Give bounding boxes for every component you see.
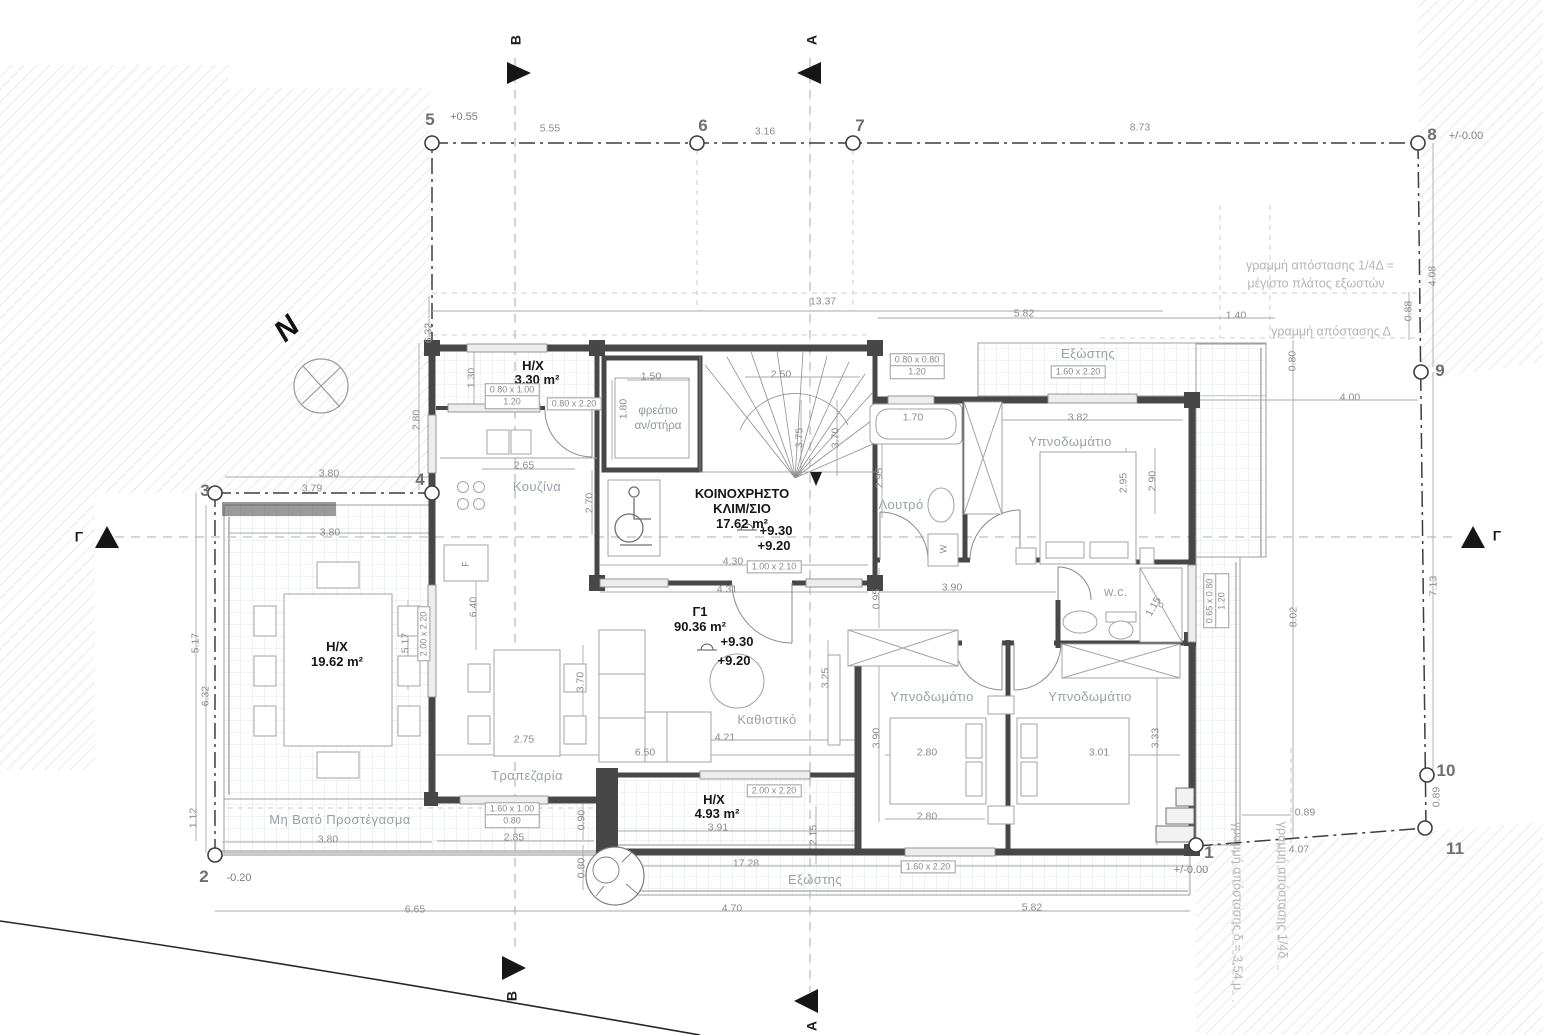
dimension-label: 0.80: [1287, 351, 1298, 371]
level-label: +0.55: [450, 112, 478, 124]
dimension-label: 3.01: [1089, 747, 1109, 758]
grid-point-6: 6: [698, 117, 707, 135]
dimension-label: 1.12: [188, 808, 199, 828]
dimension-label: 13.37: [810, 296, 836, 307]
opening-size-box: 0.80 x 2.20: [547, 397, 602, 410]
level-label: +9.30: [721, 635, 754, 649]
room-label-bedroom-2: Υπνοδωμάτιο: [890, 690, 973, 704]
dimension-label: 3.70: [575, 672, 586, 692]
dimension-label: 3.90: [942, 582, 962, 593]
grid-point-7: 7: [855, 117, 864, 135]
level-label: +/-0.00: [1449, 131, 1484, 143]
dimension-label: 7.13: [1428, 576, 1439, 596]
dimension-label: 0.90: [576, 810, 587, 830]
level-label: -0.20: [226, 873, 251, 885]
dimension-label: 0.89: [1431, 787, 1442, 807]
dimension-label: 3.16: [755, 126, 775, 137]
area-label-common-stair: ΚΛΙΜ/ΣΙΟ: [713, 502, 771, 516]
grid-point-9: 9: [1435, 362, 1444, 380]
opening-size-box: 1.00 x 2.10: [747, 560, 802, 573]
dimension-label: 4.31: [717, 584, 737, 595]
dimension-label: 2.80: [917, 811, 937, 822]
room-label-elevator-shaft: αν/στήρα: [635, 420, 682, 432]
dimension-label: 2.70: [584, 493, 595, 513]
area-label-common-stair: ΚΟΙΝΟΧΡΗΣΤΟ: [695, 487, 789, 501]
opening-size: 1.00 x 2.10: [748, 561, 801, 572]
fridge-label: F: [461, 561, 470, 567]
area-label: 19.62 m²: [311, 655, 363, 669]
dimension-label: 4.07: [1289, 844, 1309, 855]
dimension-label: 1.80: [618, 399, 629, 419]
opening-sill-height: 1.20: [891, 366, 944, 378]
opening-size: 0.80 x 0.80: [891, 354, 944, 365]
area-label: H/X: [522, 359, 544, 373]
dimension-label: 5.82: [1022, 902, 1042, 913]
dimension-label: 8.02: [1288, 607, 1299, 627]
opening-size-box: 2.00 x 2.20: [747, 784, 802, 797]
opening-size: 1.60 x 2.20: [902, 861, 955, 872]
dimension-label: 3.80: [320, 527, 340, 538]
dimension-label: 2.65: [514, 460, 534, 471]
grid-point-4: 4: [415, 471, 424, 489]
dimension-label: 4.08: [1427, 266, 1438, 286]
dimension-label: 0.80: [576, 858, 587, 878]
dimension-label: 3.80: [318, 834, 338, 845]
dimension-label: 2.95: [874, 468, 885, 488]
dimension-label: 2.80: [917, 747, 937, 758]
dimension-label: 8.73: [1130, 122, 1150, 133]
room-label-bedroom-3: Υπνοδωμάτιο: [1048, 690, 1131, 704]
room-label-kitchen: Κουζίνα: [513, 480, 561, 494]
floor-plan-canvas: 5678910111234+0.55+/-0.00-0.20+/-0.005.5…: [0, 0, 1543, 1035]
dimension-label: 6.32: [423, 323, 434, 343]
opening-size-box: 1.60 x 2.20: [901, 860, 956, 873]
setback-note: γραμμή απόστασης δ = 3,54 μ: [1230, 822, 1243, 990]
room-label-bedroom-1: Υπνοδωμάτιο: [1028, 435, 1111, 449]
wheelchair-icon: [608, 480, 660, 556]
opening-size: 2.00 x 2.20: [418, 608, 429, 661]
dimension-label: 4.21: [715, 732, 735, 743]
section-marker-b-bottom: B: [505, 991, 520, 1001]
dimension-label: 1.70: [903, 412, 923, 423]
room-label-canopy: Μη Βατό Προστέγασμα: [269, 813, 410, 827]
level-label: +9.20: [758, 539, 791, 553]
dimension-label: 4.00: [1340, 392, 1360, 403]
dimension-label: 3.33: [1150, 728, 1161, 748]
opening-size: 2.00 x 2.20: [748, 785, 801, 796]
dimension-label: 3.80: [319, 468, 339, 479]
dimension-label: 0.95: [871, 589, 882, 609]
opening-size-box: 0.65 x 0.801.20: [1203, 574, 1229, 629]
road-line: [0, 921, 700, 1035]
setback-note: μέγιστο πλάτος εξωστών: [1247, 277, 1384, 290]
setback-note: γραμμή απόστασης Δ: [1271, 325, 1391, 338]
section-marker-g-left: Γ: [75, 530, 83, 545]
dimension-label: 2.80: [411, 410, 422, 430]
opening-size-box: 2.00 x 2.20: [417, 607, 430, 662]
room-label-bathroom: Λουτρό: [878, 498, 923, 512]
dimension-label: 3.70: [830, 428, 841, 448]
setback-note: γραμμή απόστασης 1/4Δ =: [1246, 259, 1394, 272]
dimension-label: 3.91: [708, 822, 728, 833]
opening-size: 0.80 x 1.00: [486, 384, 539, 395]
section-marker-b-top: B: [509, 35, 524, 45]
dimension-label: 17.28: [733, 858, 759, 869]
room-label-balcony-top: Εξώστης: [1061, 347, 1115, 361]
opening-sill-height: 1.20: [486, 396, 539, 408]
dimension-label: 2.95: [1118, 473, 1129, 493]
dimension-label: 1.30: [466, 368, 477, 388]
dimension-label: 6.50: [635, 747, 655, 758]
level-label: +9.30: [760, 524, 793, 538]
area-label: H/X: [703, 793, 725, 807]
grid-point-11: 11: [1446, 840, 1464, 858]
opening-size-box: 1.60 x 1.000.80: [485, 802, 540, 828]
room-label-balcony-bottom: Εξώστης: [788, 873, 842, 887]
section-marker-g-right: Γ: [1493, 529, 1501, 544]
opening-size: 0.65 x 0.80: [1204, 575, 1215, 628]
dimension-label: 3.79: [302, 483, 322, 494]
washer-label: W: [939, 545, 948, 554]
opening-size-box: 0.80 x 1.001.20: [485, 383, 540, 409]
dimension-label: 3.82: [1068, 412, 1088, 423]
area-label: H/X: [326, 640, 348, 654]
section-marker-a-top: A: [805, 35, 820, 45]
dimension-label: 4.30: [723, 556, 743, 567]
dimension-label: 3.75: [794, 428, 805, 448]
dimension-label: 2.15: [808, 825, 819, 845]
room-label-dining: Τραπεζαρία: [491, 769, 563, 783]
tree-icon: [586, 847, 644, 905]
opening-size: 1.60 x 1.00: [486, 803, 539, 814]
area-label: 4.93 m²: [695, 807, 740, 821]
level-label: +9.20: [718, 654, 751, 668]
dimension-label: 0.89: [1295, 807, 1315, 818]
dimension-label: 3.25: [820, 668, 831, 688]
dimension-label: 5.17: [190, 633, 201, 653]
dimension-label: 6.65: [405, 904, 425, 915]
dimension-label: 1.40: [1226, 310, 1246, 321]
dimension-label: 2.90: [1147, 471, 1158, 491]
opening-sill-height: 1.20: [1216, 575, 1228, 628]
opening-sill-height: 0.80: [486, 815, 539, 827]
dimension-label: 2.50: [771, 369, 791, 380]
area-label-apartment: 90.36 m²: [674, 620, 726, 634]
opening-size: 0.80 x 2.20: [548, 398, 601, 409]
opening-size: 1.60 x 2.20: [1052, 366, 1105, 377]
room-label-elevator-shaft: φρεάτιο: [638, 405, 677, 417]
opening-size-box: 0.80 x 0.801.20: [890, 353, 945, 379]
dimension-label: 5.82: [1014, 308, 1034, 319]
dimension-label: 6.40: [468, 597, 479, 617]
dimension-label: 3.90: [871, 728, 882, 748]
grid-point-2: 2: [199, 868, 208, 886]
opening-size-box: 1.60 x 2.20: [1051, 365, 1106, 378]
dimension-label: 1.50: [641, 371, 661, 382]
level-label: +/-0.00: [1174, 865, 1209, 877]
dimension-label: 5.55: [540, 123, 560, 134]
dimension-label: 5.17: [400, 633, 411, 653]
grid-point-10: 10: [1437, 762, 1456, 780]
section-marker-a-bottom: A: [805, 1021, 820, 1031]
dimension-label: 2.85: [504, 832, 524, 843]
grid-point-5: 5: [425, 111, 434, 129]
dimension-label: 2.75: [514, 734, 534, 745]
room-label-living: Καθιστικό: [737, 713, 796, 727]
dimension-label: 4.70: [722, 903, 742, 914]
room-label-wc: w.c.: [1104, 585, 1128, 599]
dimension-label: 0.88: [1403, 301, 1414, 321]
exterior-steps: [1156, 788, 1194, 842]
dimension-label: 6.32: [200, 686, 211, 706]
area-label-apartment: Γ1: [692, 605, 707, 619]
grid-point-3: 3: [200, 482, 209, 500]
grid-point-8: 8: [1427, 126, 1436, 144]
setback-note: γραμμή απόστασης 1/4δ: [1275, 822, 1288, 958]
grid-point-1: 1: [1204, 844, 1213, 862]
